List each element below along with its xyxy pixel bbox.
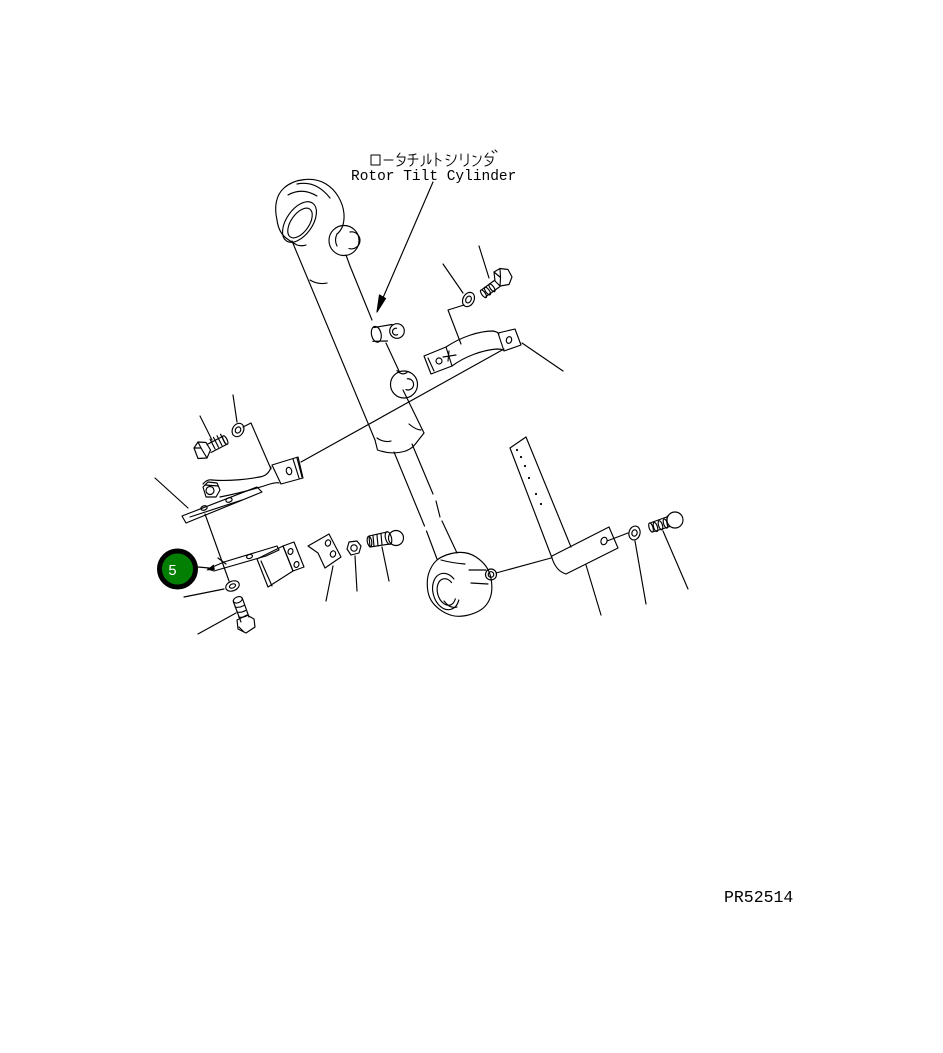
svg-text:PR52514: PR52514 xyxy=(724,888,793,907)
svg-text:Rotor Tilt Cylinder: Rotor Tilt Cylinder xyxy=(351,169,516,185)
svg-text:5: 5 xyxy=(168,564,177,580)
